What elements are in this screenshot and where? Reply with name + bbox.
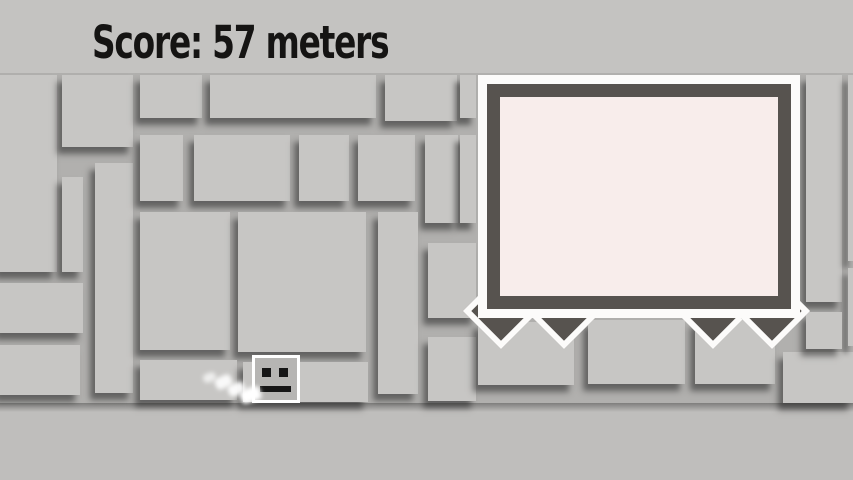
game-viewport[interactable]: Score: 57 meters	[0, 0, 853, 480]
player-character	[252, 355, 300, 403]
player-left-eye	[262, 368, 271, 377]
sign-blank-screen	[500, 97, 778, 296]
score-text: Score: 57 meters	[92, 16, 388, 69]
player-mouth	[260, 386, 291, 392]
hud-bar: Score: 57 meters	[0, 0, 853, 73]
player-right-eye	[279, 368, 288, 377]
wall-drop-shadow	[0, 403, 853, 412]
floor-ground	[0, 403, 853, 480]
sign-panel	[478, 75, 800, 318]
sign-frame	[487, 84, 791, 309]
